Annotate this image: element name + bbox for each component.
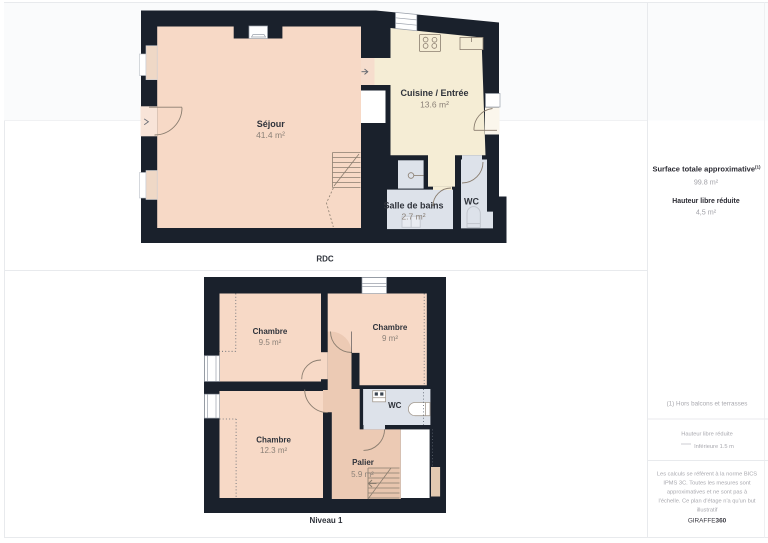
svg-text:Chambre: Chambre <box>253 327 288 336</box>
svg-text:12.3 m²: 12.3 m² <box>260 446 287 455</box>
svg-text:Hauteur libre réduite: Hauteur libre réduite <box>672 198 740 205</box>
svg-text:illustratif: illustratif <box>697 508 718 514</box>
svg-text:9 m²: 9 m² <box>382 334 398 343</box>
svg-text:41.4 m²: 41.4 m² <box>256 130 285 140</box>
svg-text:Hauteur libre réduite: Hauteur libre réduite <box>681 432 733 438</box>
svg-text:RDC: RDC <box>316 255 334 264</box>
svg-text:(1) Hors balcons et terrasses: (1) Hors balcons et terrasses <box>667 401 748 408</box>
svg-text:WC: WC <box>388 401 402 410</box>
svg-text:Chambre: Chambre <box>256 435 291 444</box>
svg-text:Les calculs se réfèrent à la n: Les calculs se réfèrent à la norme BICS <box>657 472 757 478</box>
svg-text:5.9 m²: 5.9 m² <box>351 470 374 479</box>
svg-text:13.6 m²: 13.6 m² <box>420 100 449 110</box>
svg-text:99.8 m²: 99.8 m² <box>694 178 719 187</box>
svg-text:Séjour: Séjour <box>257 119 286 129</box>
svg-text:IPMS 3C. Toutes les mesures so: IPMS 3C. Toutes les mesures sont <box>663 481 751 487</box>
svg-text:Inférieure 1.5 m: Inférieure 1.5 m <box>694 444 734 450</box>
svg-text:approximatives et ne sont pas: approximatives et ne sont pas à <box>667 490 748 496</box>
svg-text:GIRAFFE360: GIRAFFE360 <box>688 518 727 525</box>
svg-text:Niveau 1: Niveau 1 <box>310 516 343 525</box>
svg-text:Palier: Palier <box>352 458 374 467</box>
svg-text:4,5 m²: 4,5 m² <box>696 208 717 217</box>
svg-text:2.7 m²: 2.7 m² <box>401 212 425 222</box>
svg-text:WC: WC <box>464 197 479 207</box>
svg-text:l'échelle. Ce plan d'étage n'a: l'échelle. Ce plan d'étage n'a qu'un but <box>659 499 756 505</box>
svg-text:Chambre: Chambre <box>373 323 408 332</box>
svg-text:9.5 m²: 9.5 m² <box>259 338 282 347</box>
svg-text:Surface totale approximative(1: Surface totale approximative(1) <box>652 165 761 174</box>
svg-text:Salle de bains: Salle de bains <box>383 201 443 211</box>
svg-text:Cuisine / Entrée: Cuisine / Entrée <box>400 88 468 98</box>
